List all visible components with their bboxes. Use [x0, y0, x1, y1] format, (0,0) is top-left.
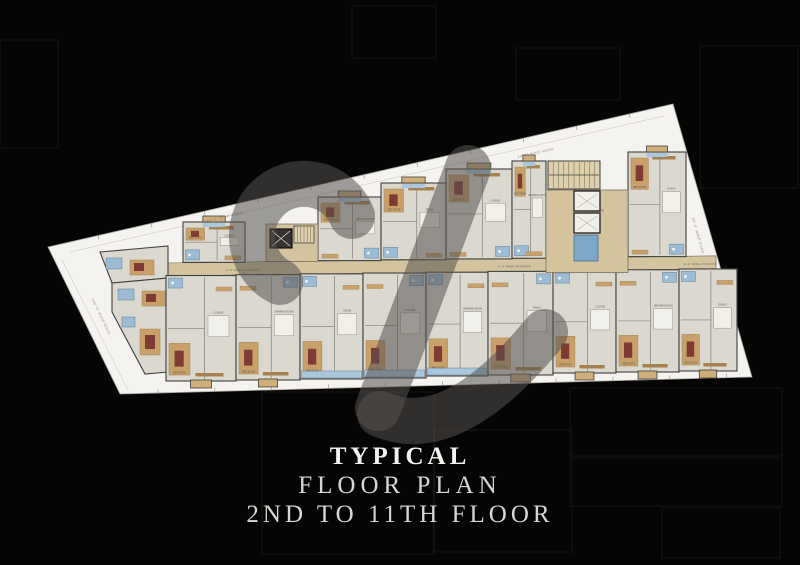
bed [244, 350, 252, 366]
kitchen-counter [492, 283, 508, 287]
corridor-label: 6'-0" WIDE PASSAGE [684, 262, 717, 266]
kitchen-counter [216, 287, 232, 291]
room-label: LOUNGE [491, 200, 501, 202]
bed [175, 351, 184, 367]
room-label: BED ROOM [432, 368, 445, 370]
room-label: BED ROOM [306, 371, 319, 373]
kitchen-counter [620, 281, 636, 285]
room-label: BED ROOM [173, 373, 186, 375]
room-label: DINING [533, 308, 541, 310]
bed [389, 194, 397, 206]
background-grid-rect [516, 48, 620, 100]
bathroom [365, 248, 379, 258]
bed [687, 342, 695, 357]
bed [145, 335, 155, 349]
living-room-rug [274, 315, 293, 336]
kitchen-counter [632, 250, 648, 254]
bed [434, 346, 442, 362]
balcony [258, 379, 277, 387]
living-room-rug [663, 192, 680, 213]
living-room-rug [463, 312, 482, 333]
bathroom [496, 246, 510, 256]
bath-fixture [665, 276, 668, 279]
room-label: DINING [667, 189, 675, 191]
bathroom [556, 273, 570, 283]
bed [134, 263, 144, 271]
room-label: BED ROOM [387, 210, 400, 212]
living-room-rug [714, 308, 731, 328]
room-label: LOUNGE [214, 313, 224, 315]
kitchen-counter [367, 285, 383, 289]
room-label: DRAWING ROOM [463, 308, 482, 311]
window-glazing [402, 184, 425, 188]
window-glazing [523, 162, 535, 166]
balcony [699, 370, 716, 378]
balcony [191, 380, 212, 388]
title-block: TYPICAL FLOOR PLAN 2ND TO 11TH FLOOR [0, 443, 800, 530]
living-room-rug [654, 309, 673, 329]
bathroom [169, 278, 183, 288]
room-label: DRAWING ROOM [654, 305, 673, 308]
kitchen-counter [322, 254, 338, 258]
title-line-floor-plan: FLOOR PLAN [0, 471, 800, 501]
living-room-rug [591, 309, 610, 329]
living-room-rug [532, 198, 542, 217]
room-label: BED ROOM [559, 365, 572, 367]
bath-fixture [539, 277, 542, 280]
room-label: BED ROOM [684, 363, 697, 365]
room-label: BED ROOM [622, 364, 635, 366]
living-room-rug [208, 316, 229, 337]
balcony [638, 371, 657, 379]
room-label: BED ROOM [633, 187, 646, 189]
bath-fixture [171, 282, 174, 285]
bath-fixture [386, 251, 389, 254]
bed [518, 174, 522, 189]
bed [636, 165, 644, 181]
kitchen-counter [596, 282, 612, 286]
bathroom [670, 244, 684, 254]
window-glazing [203, 223, 225, 227]
bathroom [118, 289, 134, 300]
bath-fixture [517, 249, 520, 252]
living-room-rug [338, 314, 357, 335]
room-label: DRAWING ROOM [275, 311, 294, 314]
wardrobe [579, 365, 604, 369]
bed [146, 294, 156, 302]
balcony [575, 372, 594, 380]
kitchen-counter [468, 284, 484, 288]
room-label: DINING [343, 311, 351, 313]
room-label: DINING [718, 305, 726, 307]
bath-fixture [672, 248, 675, 251]
background-grid-rect [352, 6, 436, 58]
bathroom [106, 258, 122, 269]
wardrobe [263, 372, 289, 376]
balcony [402, 177, 425, 183]
wardrobe [642, 364, 667, 368]
bathroom [186, 250, 200, 260]
bed [308, 349, 316, 365]
wardrobe [703, 363, 726, 367]
background-grid-rect [0, 40, 58, 148]
bath-fixture [305, 280, 308, 283]
bed [191, 231, 199, 237]
title-line-typical: TYPICAL [0, 443, 800, 471]
floor-plan-poster: 6'-0" WIDE PASSAGE6'-0" WIDE PASSAGE6'-0… [0, 0, 800, 565]
background-grid-rect [700, 46, 798, 188]
title-line-floors: 2ND TO 11TH FLOOR [0, 500, 800, 530]
room-label: BED ROOM [514, 194, 527, 196]
bathroom [384, 247, 398, 257]
window-glazing [647, 153, 668, 157]
room-label: DRAWING ROOM [528, 194, 547, 197]
bath-fixture [498, 250, 501, 253]
bed [624, 342, 632, 357]
bath-fixture [684, 275, 687, 278]
bath-fixture [188, 253, 191, 256]
bath-fixture [558, 277, 561, 280]
corridor-label: 6'-0" WIDE PASSAGE [498, 264, 531, 268]
bathroom [663, 272, 677, 282]
wardrobe [195, 373, 223, 377]
bath-fixture [367, 252, 370, 255]
room-label: LOUNGE [595, 306, 605, 308]
bathroom [122, 317, 135, 327]
bathroom [682, 271, 696, 281]
kitchen-counter [526, 252, 542, 256]
water-tank [574, 235, 598, 261]
kitchen-counter [343, 285, 359, 289]
living-room-rug [486, 203, 506, 221]
bathroom [303, 276, 317, 286]
balcony [647, 146, 668, 152]
kitchen-counter [717, 280, 733, 284]
bathroom [537, 274, 551, 284]
room-label: BED ROOM [189, 238, 202, 240]
room-label: BED ROOM [242, 372, 255, 374]
